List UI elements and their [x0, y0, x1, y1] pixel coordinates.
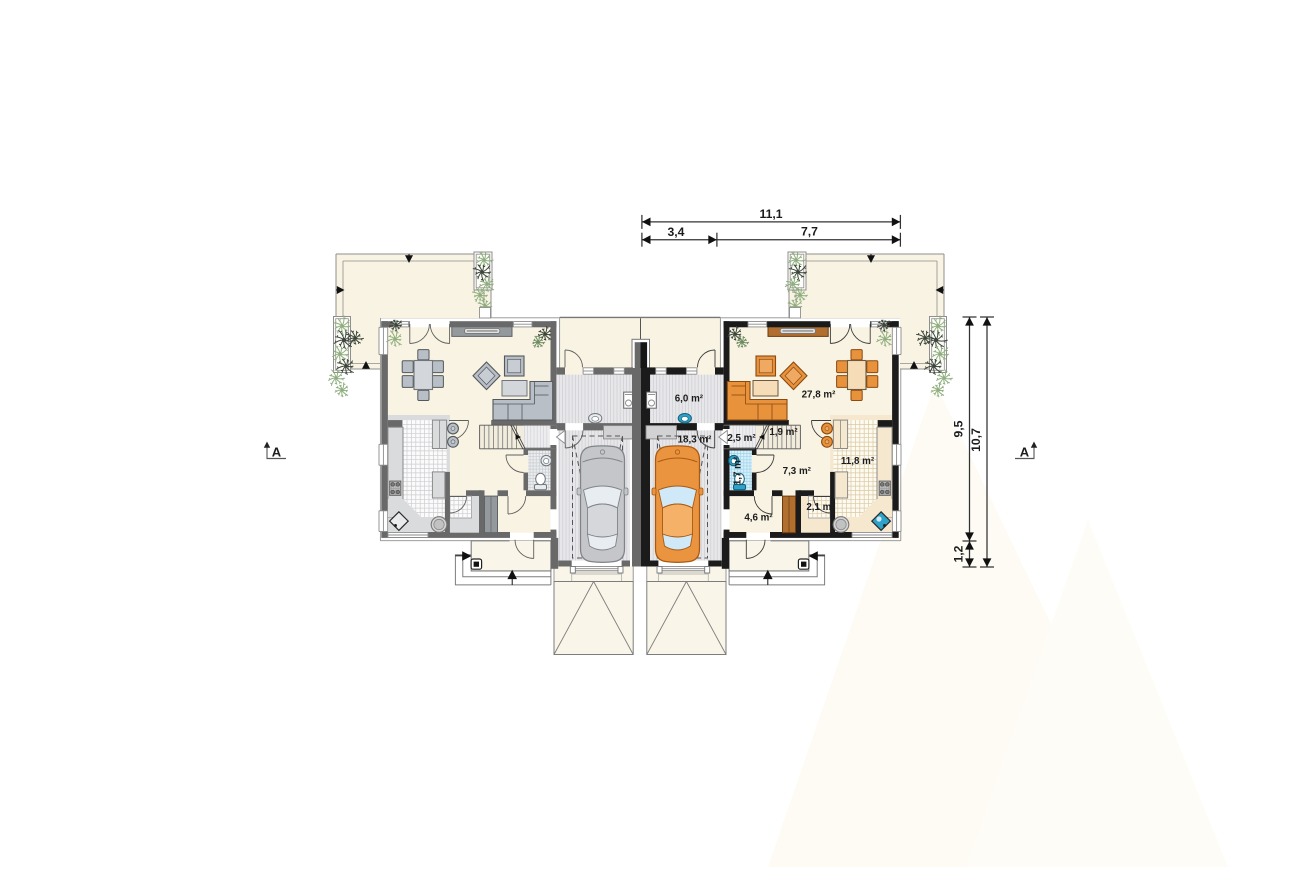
svg-text:7,7: 7,7 — [801, 225, 818, 239]
svg-text:10,7: 10,7 — [969, 428, 983, 452]
svg-text:1,7 m²: 1,7 m² — [733, 456, 744, 485]
svg-text:7,3 m²: 7,3 m² — [783, 466, 812, 477]
svg-text:2,1 m²: 2,1 m² — [806, 502, 835, 513]
svg-text:6,0 m²: 6,0 m² — [675, 394, 704, 405]
svg-text:2,5 m²: 2,5 m² — [727, 433, 756, 444]
svg-text:18,3 m²: 18,3 m² — [678, 435, 713, 446]
svg-text:11,8 m²: 11,8 m² — [841, 456, 875, 467]
svg-text:27,8 m²: 27,8 m² — [802, 390, 837, 401]
svg-text:3,4: 3,4 — [668, 225, 685, 239]
svg-text:11,1: 11,1 — [759, 207, 782, 221]
svg-text:A: A — [1020, 445, 1030, 460]
svg-text:1,2: 1,2 — [952, 545, 966, 562]
svg-text:A: A — [272, 445, 282, 460]
svg-text:9,5: 9,5 — [952, 420, 966, 437]
svg-text:1,9 m²: 1,9 m² — [769, 427, 798, 438]
svg-text:4,6 m²: 4,6 m² — [744, 513, 773, 524]
